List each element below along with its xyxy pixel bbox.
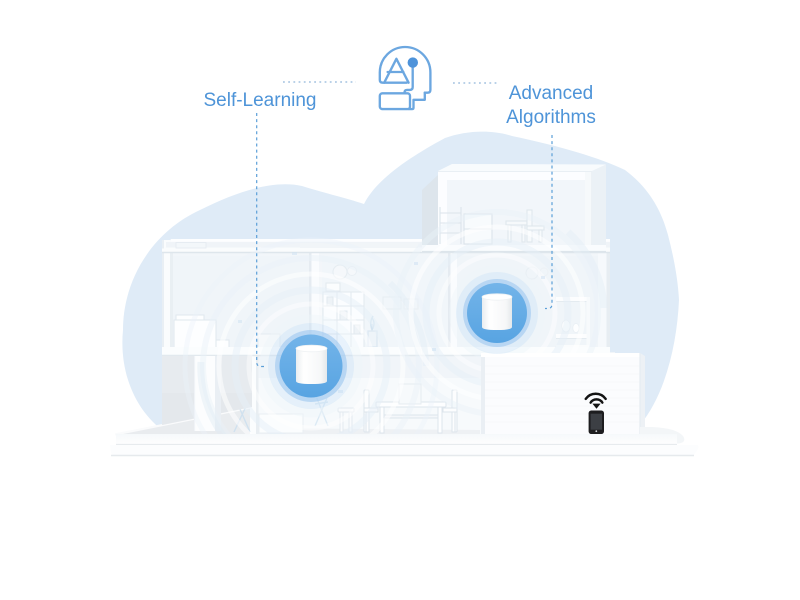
svg-text:Algorithms: Algorithms [506, 107, 596, 128]
svg-text:Self-Learning: Self-Learning [203, 90, 316, 111]
svg-text:Advanced: Advanced [509, 83, 594, 104]
